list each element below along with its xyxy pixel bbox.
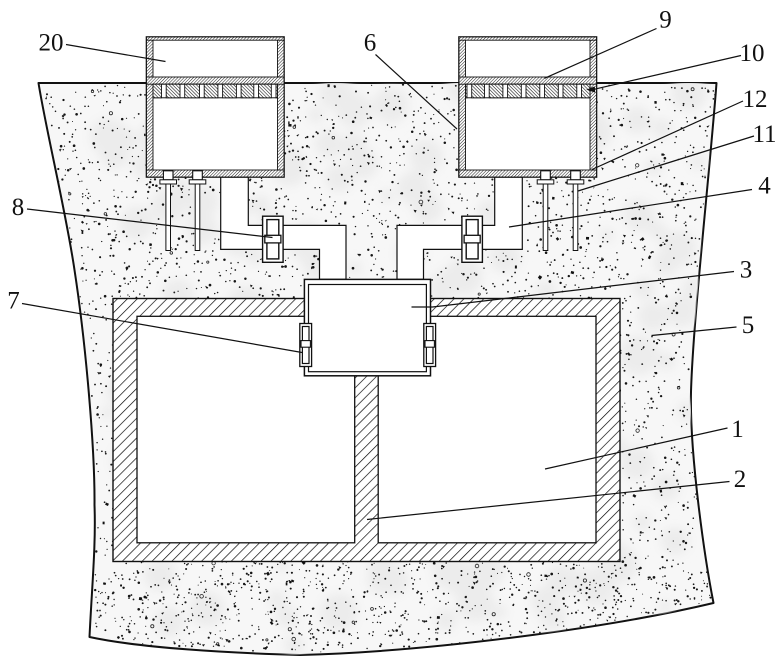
svg-text:20: 20 [39,30,64,57]
svg-text:6: 6 [364,30,377,57]
